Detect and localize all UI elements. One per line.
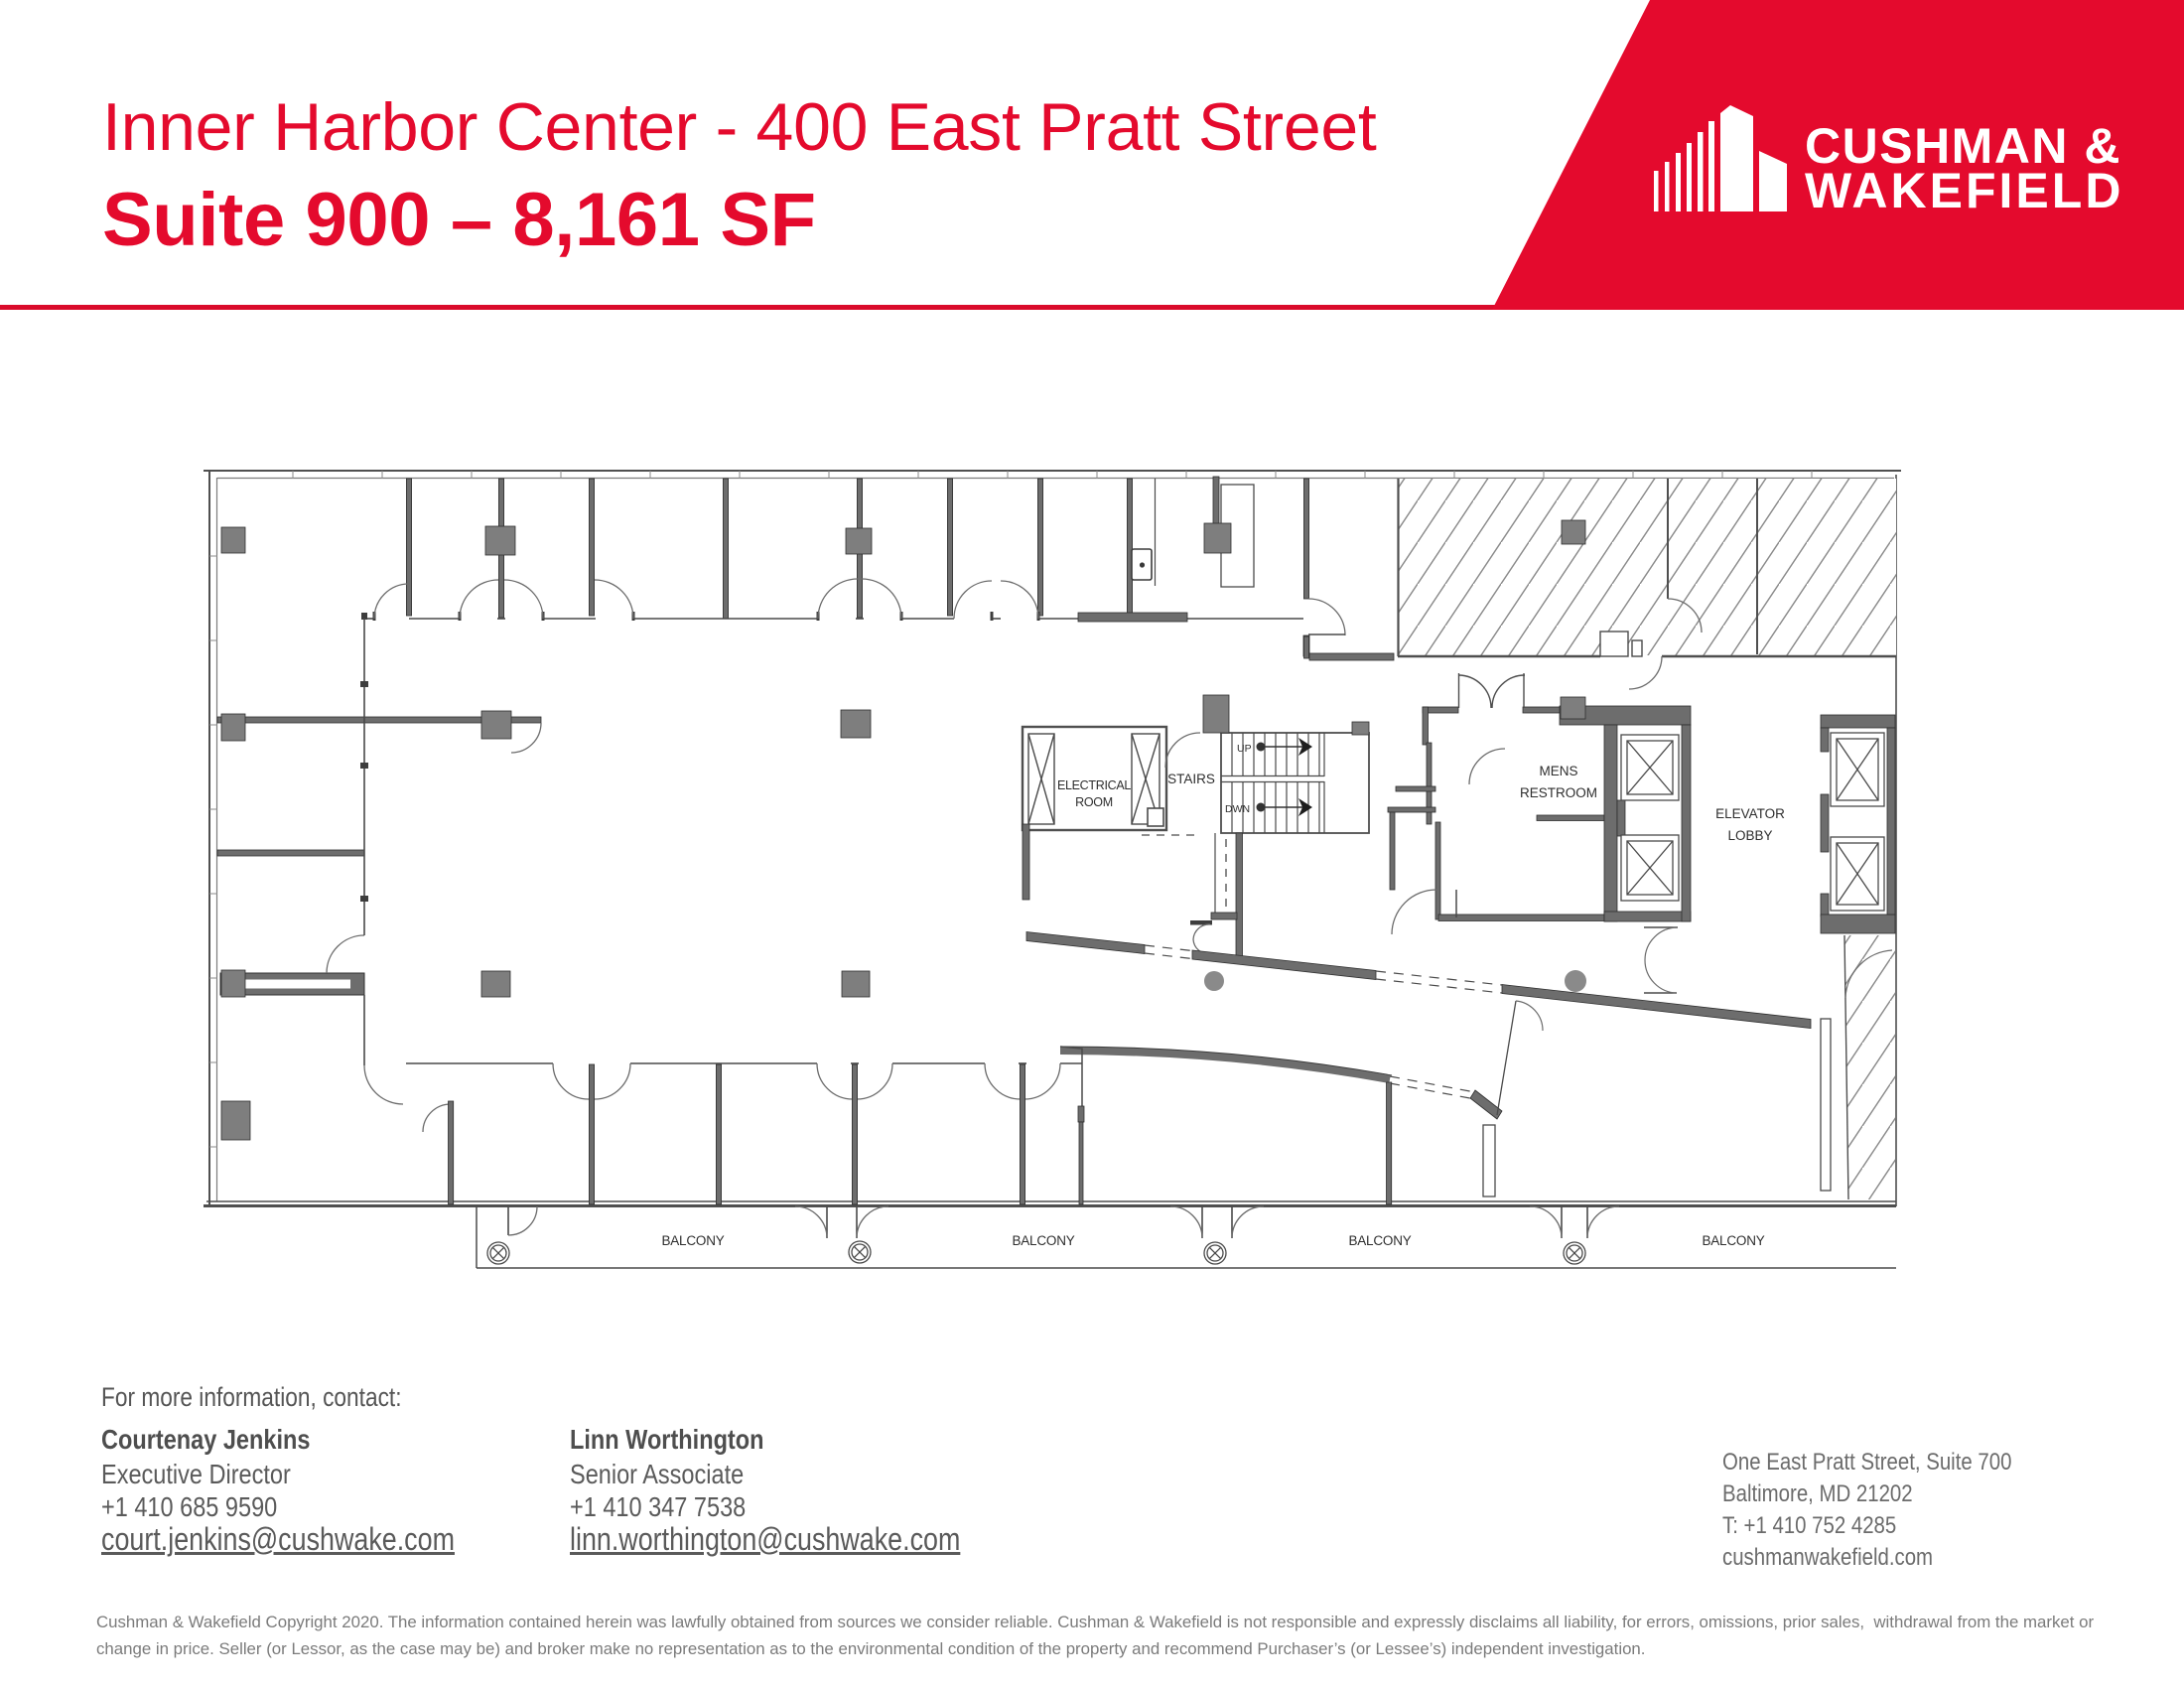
- svg-text:BALCONY: BALCONY: [1348, 1233, 1411, 1248]
- svg-text:RESTROOM: RESTROOM: [1520, 785, 1597, 800]
- svg-text:ELECTRICAL: ELECTRICAL: [1057, 778, 1131, 792]
- svg-text:DWN: DWN: [1225, 803, 1250, 815]
- svg-text:ELEVATOR: ELEVATOR: [1715, 806, 1785, 821]
- svg-text:ROOM: ROOM: [1075, 795, 1113, 809]
- svg-text:UP: UP: [1237, 743, 1252, 755]
- svg-text:BALCONY: BALCONY: [661, 1233, 724, 1248]
- svg-text:BALCONY: BALCONY: [1702, 1233, 1764, 1248]
- svg-text:BALCONY: BALCONY: [1012, 1233, 1074, 1248]
- svg-text:MENS: MENS: [1539, 764, 1577, 778]
- svg-text:LOBBY: LOBBY: [1727, 828, 1772, 843]
- svg-text:STAIRS: STAIRS: [1167, 772, 1215, 786]
